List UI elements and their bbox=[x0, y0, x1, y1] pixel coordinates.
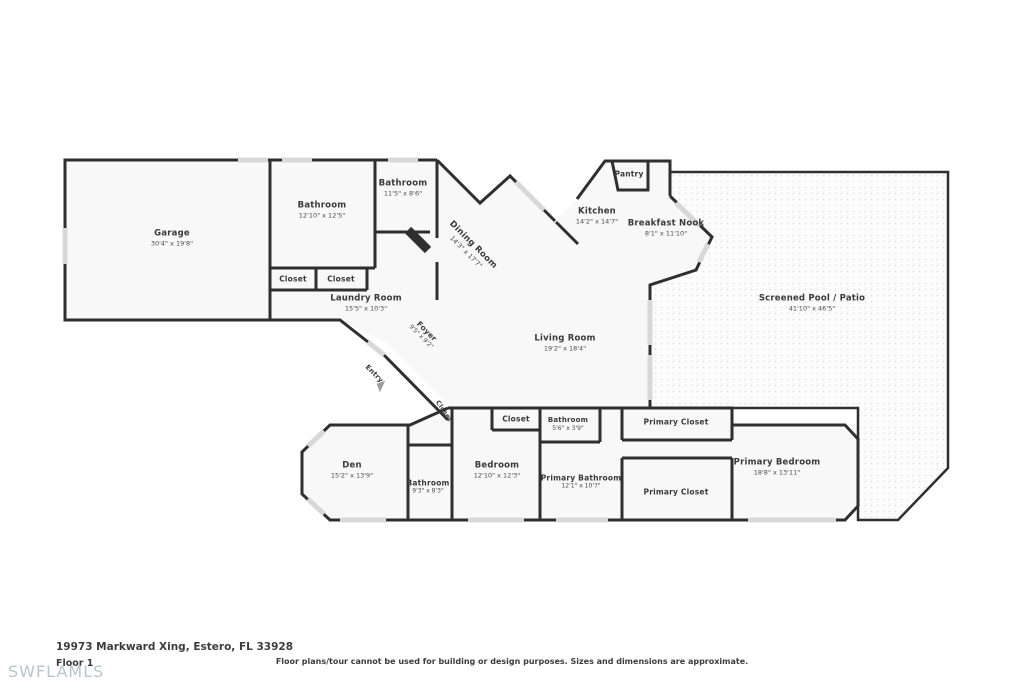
left-wing-floor bbox=[65, 160, 437, 342]
property-address: 19973 Markward Xing, Estero, FL 33928 bbox=[56, 641, 293, 653]
floorplan-drawing bbox=[0, 0, 1024, 681]
floorplan-canvas: Garage 30'4" x 19'8" Bathroom 12'10" x 1… bbox=[0, 0, 1024, 681]
disclaimer-text: Floor plans/tour cannot be used for buil… bbox=[0, 657, 1024, 666]
